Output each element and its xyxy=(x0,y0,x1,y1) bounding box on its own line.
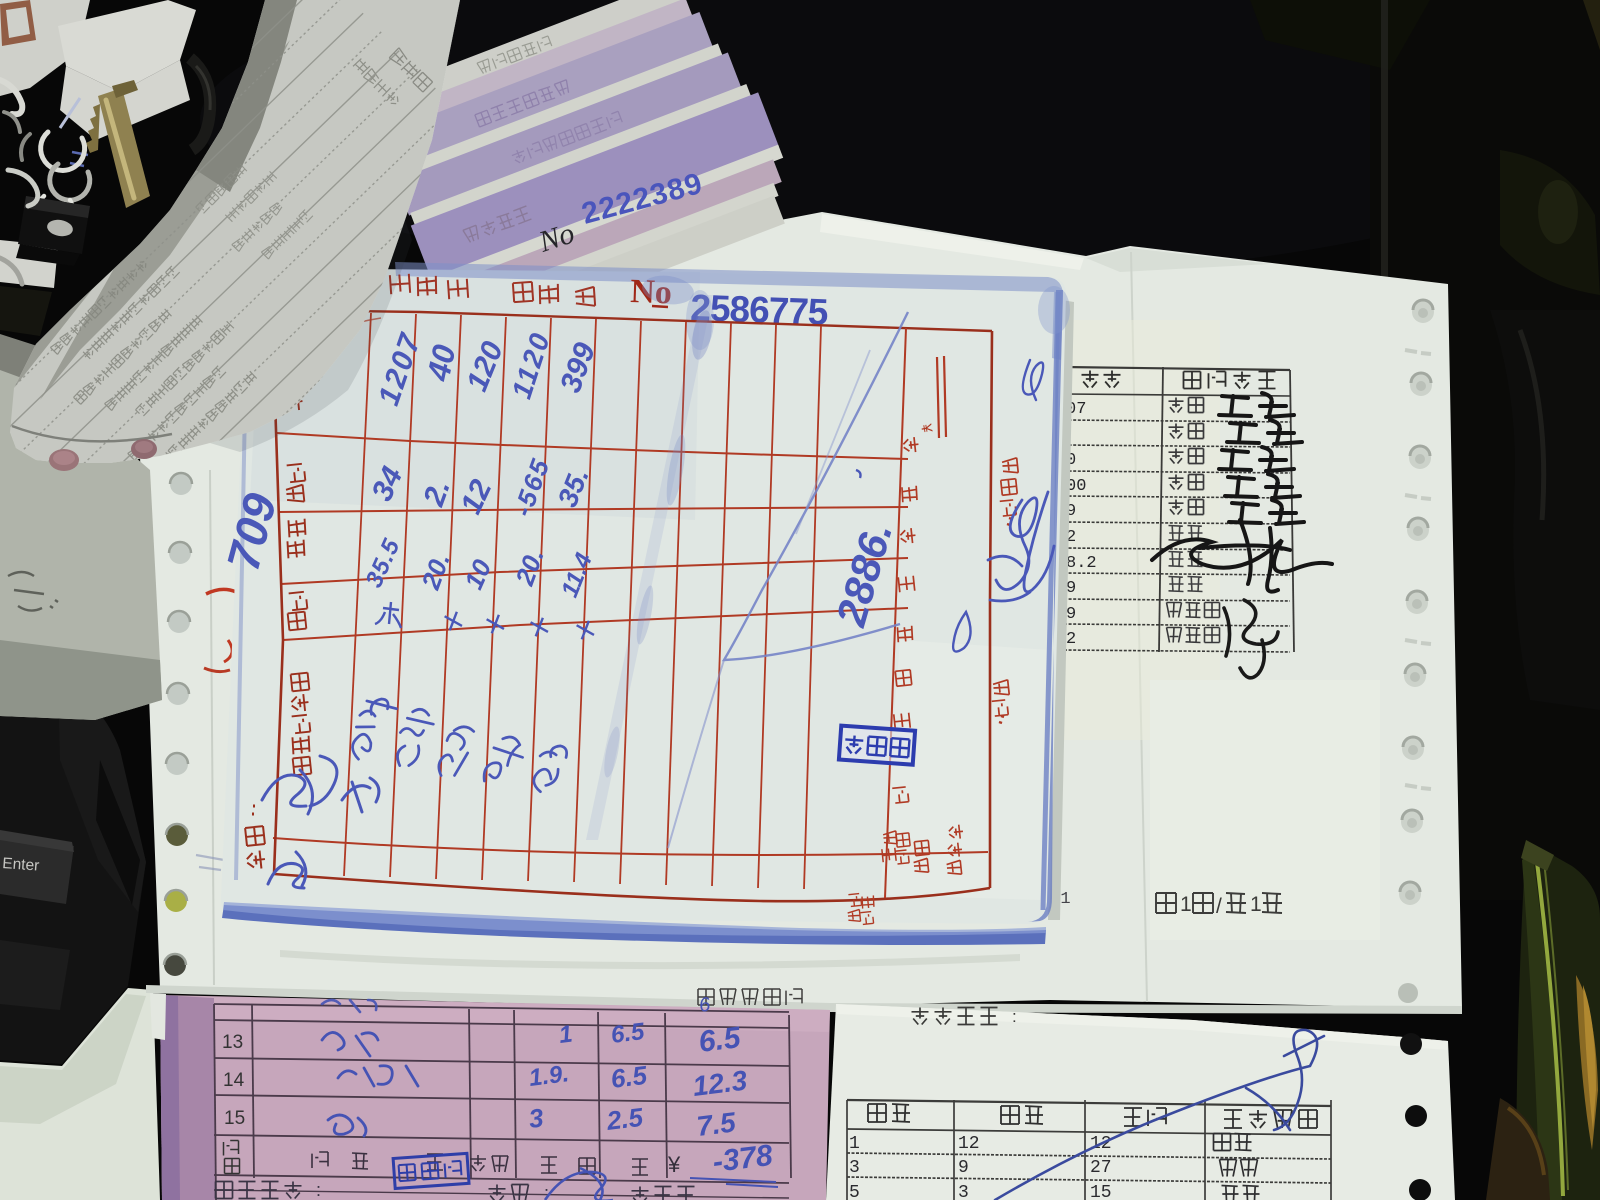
svg-text:1: 1 xyxy=(1180,893,1192,916)
svg-text:12: 12 xyxy=(958,1134,980,1154)
svg-text:15: 15 xyxy=(1090,1183,1112,1200)
svg-text:Enter: Enter xyxy=(2,855,40,875)
svg-text:6.5: 6.5 xyxy=(697,1021,744,1059)
svg-text:9: 9 xyxy=(958,1158,969,1178)
svg-text::: : xyxy=(1012,1007,1017,1026)
svg-text:¥: ¥ xyxy=(667,1152,681,1177)
svg-text::: : xyxy=(316,1180,321,1200)
svg-text:15: 15 xyxy=(224,1108,245,1129)
svg-text:13: 13 xyxy=(222,1032,243,1053)
svg-text:1: 1 xyxy=(1250,893,1262,916)
svg-text:2: 2 xyxy=(1066,630,1076,649)
svg-text:6.5: 6.5 xyxy=(609,1060,649,1094)
svg-text:2.5: 2.5 xyxy=(604,1102,645,1136)
svg-text:6.5: 6.5 xyxy=(609,1018,646,1049)
svg-text:40: 40 xyxy=(420,341,463,384)
svg-text:14: 14 xyxy=(223,1070,245,1091)
svg-text:9: 9 xyxy=(1066,605,1076,624)
svg-text:1: 1 xyxy=(849,1134,860,1154)
svg-text:8.2: 8.2 xyxy=(1066,554,1097,573)
svg-text:3: 3 xyxy=(849,1158,860,1178)
svg-text:7.5: 7.5 xyxy=(695,1106,738,1142)
svg-text:3: 3 xyxy=(958,1183,969,1200)
svg-text:1.9.: 1.9. xyxy=(527,1060,570,1092)
svg-text:27: 27 xyxy=(1090,1158,1112,1178)
svg-text:5: 5 xyxy=(849,1183,860,1200)
svg-text:/: / xyxy=(1216,895,1222,918)
